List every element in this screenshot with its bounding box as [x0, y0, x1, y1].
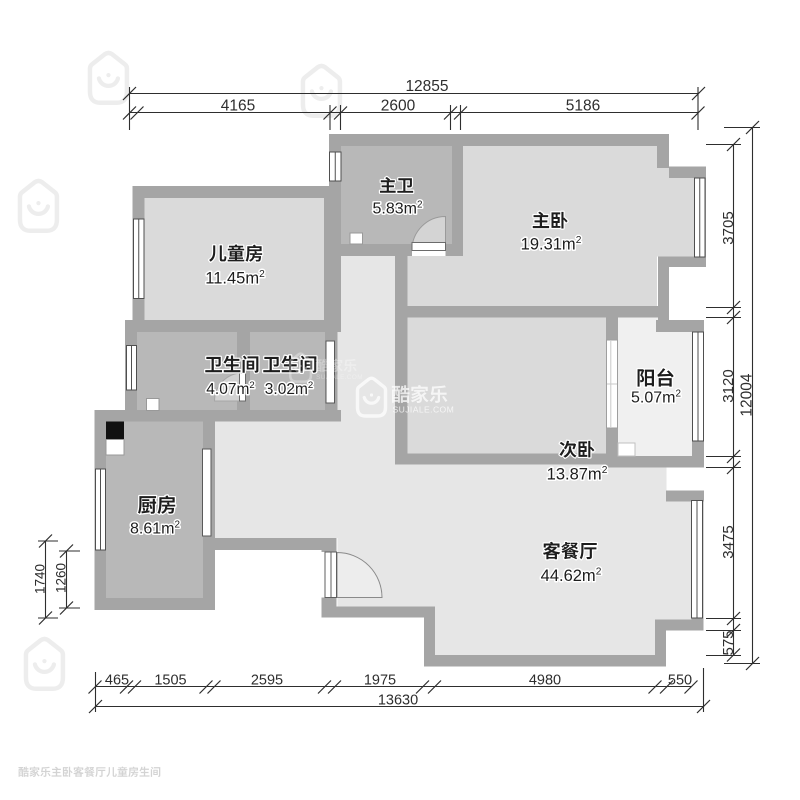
- svg-text:12855: 12855: [405, 78, 448, 95]
- svg-text:3475: 3475: [720, 525, 737, 558]
- svg-text:1505: 1505: [154, 673, 186, 689]
- svg-text:19.31m2: 19.31m2: [521, 235, 582, 253]
- svg-text:11.45m2: 11.45m2: [205, 269, 265, 287]
- svg-text:5186: 5186: [566, 98, 600, 115]
- svg-text:8.61m2: 8.61m2: [130, 519, 180, 537]
- svg-text:4980: 4980: [529, 673, 561, 689]
- svg-text:1260: 1260: [54, 563, 69, 593]
- svg-text:550: 550: [668, 673, 692, 689]
- svg-text:44.62m2: 44.62m2: [541, 567, 602, 585]
- svg-text:465: 465: [105, 673, 129, 689]
- svg-text:5.83m2: 5.83m2: [373, 199, 423, 217]
- svg-text:SUJIALE.COM: SUJIALE.COM: [316, 374, 363, 381]
- svg-text:5.07m2: 5.07m2: [631, 388, 681, 406]
- svg-text:4165: 4165: [221, 98, 255, 115]
- svg-text:4.07m2: 4.07m2: [206, 380, 254, 398]
- svg-text:SUJIALE.COM: SUJIALE.COM: [393, 405, 455, 415]
- svg-text:13630: 13630: [378, 693, 418, 709]
- svg-text:13.87m2: 13.87m2: [547, 465, 608, 483]
- svg-text:575: 575: [720, 630, 737, 655]
- svg-text:2595: 2595: [251, 673, 283, 689]
- svg-text:2600: 2600: [381, 98, 416, 115]
- svg-text:3120: 3120: [720, 369, 737, 402]
- svg-text:1740: 1740: [33, 564, 48, 594]
- svg-text:12004: 12004: [739, 373, 756, 416]
- svg-text:1975: 1975: [364, 673, 396, 689]
- svg-text:3705: 3705: [720, 211, 737, 244]
